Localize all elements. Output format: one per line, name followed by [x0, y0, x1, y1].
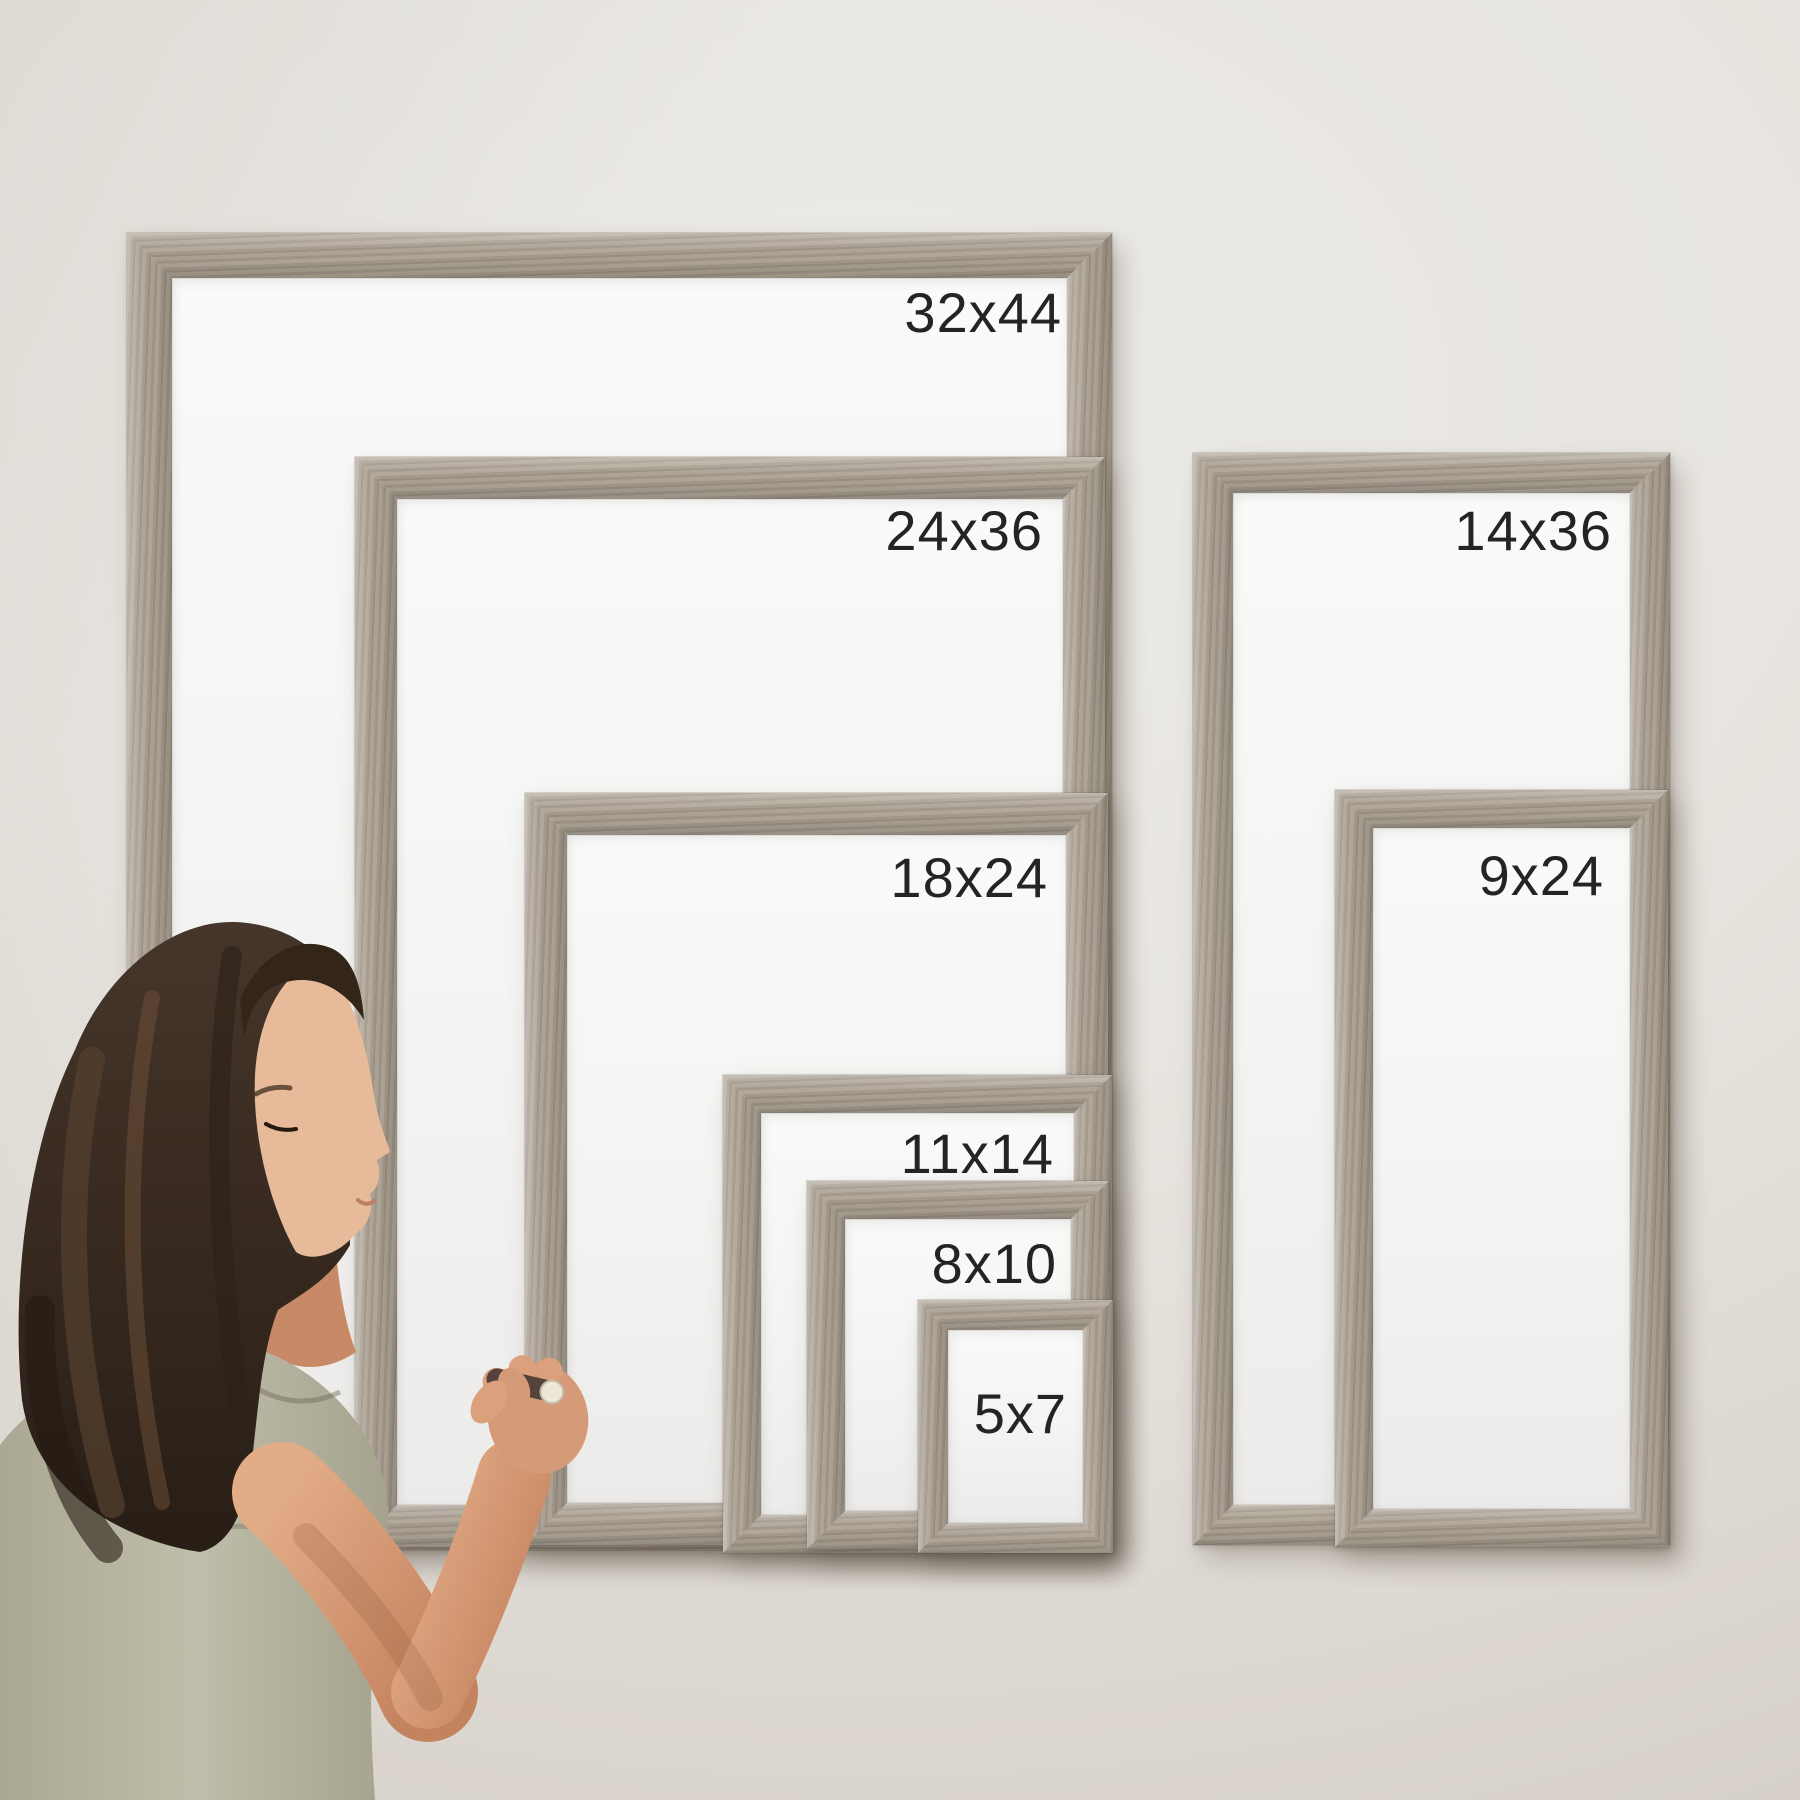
- frame-bar-left: [1193, 453, 1233, 1545]
- frame-bar-bottom: [918, 1523, 1113, 1553]
- marker-cap: [541, 1381, 564, 1404]
- product-photo: { "photo": { "subject": "frame size comp…: [0, 0, 1800, 1800]
- frame-bar-right: [1083, 1300, 1113, 1553]
- woman: [0, 880, 680, 1800]
- frame-bar-bottom: [1335, 1509, 1668, 1547]
- frame-bar-top: [723, 1075, 1112, 1113]
- size-label: 8x10: [932, 1236, 1057, 1292]
- frame-bar-right: [1630, 790, 1668, 1547]
- frame-bar-top: [807, 1181, 1109, 1219]
- woman-forearm: [428, 1476, 514, 1692]
- frame-bar-left: [723, 1075, 761, 1553]
- size-label: 14x36: [1454, 503, 1612, 559]
- size-label: 9x24: [1479, 848, 1604, 904]
- frame-bar-left: [807, 1181, 845, 1549]
- size-label: 24x36: [885, 503, 1043, 559]
- whiteboard-surface: [1373, 828, 1630, 1509]
- frame-9x24: 9x24: [1335, 790, 1668, 1547]
- frame-bar-top: [1193, 453, 1670, 493]
- size-label: 5x7: [974, 1386, 1067, 1442]
- frame-bar-top: [525, 793, 1108, 835]
- frame-bar-top: [1335, 790, 1668, 828]
- size-label: 18x24: [890, 850, 1048, 906]
- size-label: 32x44: [904, 285, 1062, 341]
- frame-bar-left: [918, 1300, 948, 1553]
- frame-5x7: 5x7: [918, 1300, 1113, 1553]
- frame-bar-top: [127, 233, 1112, 278]
- size-label: 11x14: [901, 1126, 1054, 1182]
- frame-bar-left: [1335, 790, 1373, 1547]
- frame-bar-top: [355, 457, 1105, 499]
- frame-bar-top: [918, 1300, 1113, 1330]
